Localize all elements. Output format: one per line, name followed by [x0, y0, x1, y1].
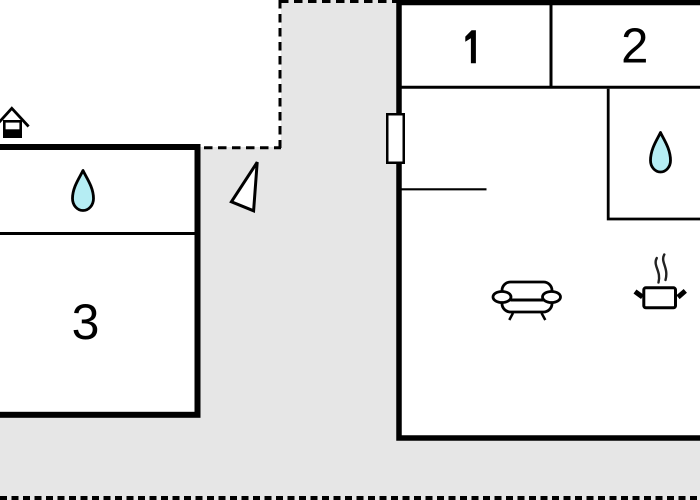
svg-text:2: 2 [621, 20, 648, 74]
svg-text:3: 3 [72, 294, 100, 350]
